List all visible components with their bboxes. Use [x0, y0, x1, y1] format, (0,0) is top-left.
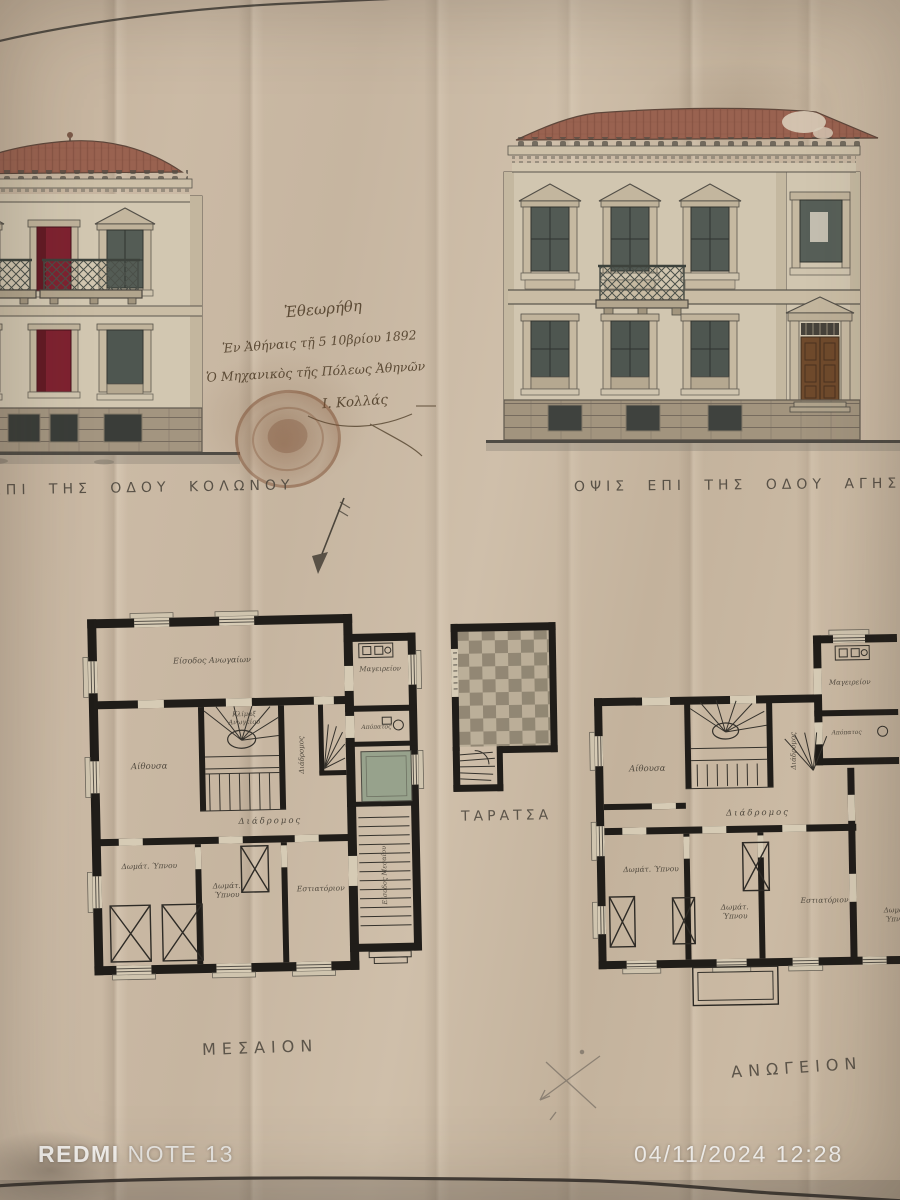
left-elevation-drawing: [0, 130, 240, 470]
right-elevation-drawing: [486, 104, 900, 452]
room-label: Δωμάτ. Ύπνου: [121, 861, 177, 872]
terrace-title: ΤΑΡΑΤΣΑ: [461, 807, 552, 825]
room-label: Είσοδος Ανωγαίων: [173, 655, 251, 667]
room-label: Διάδρομος: [297, 736, 307, 774]
room-label: Διάδρομος: [789, 732, 798, 770]
upper-floor-title: ΑΝΩΓΕΙΟΝ: [730, 1053, 862, 1081]
room-label: Διάδρομος: [238, 816, 302, 828]
right-elevation-caption: ΟΨΙΣ ΕΠΙ ΤΗΣ ΟΔΟΥ ΑΓΗΣΙΛΑΟΥ: [574, 475, 900, 495]
middle-floor-plan: Είσοδος Ανωγαίων Μαγειρείον ΚλίμαξΑνωγεί…: [74, 604, 432, 1003]
arrow-sketch: [300, 492, 360, 582]
device-watermark: REDMI NOTE 13: [38, 1141, 234, 1168]
paper-crease: [424, 0, 450, 1200]
room-label: Μαγειρείον: [359, 664, 401, 674]
room-label: Απόπατος: [831, 729, 861, 737]
approval-note-line1: Ἐθεωρήθη: [283, 297, 362, 322]
room-label: Μαγειρείον: [829, 678, 871, 687]
upper-floor-plan-drawing: [549, 609, 900, 1015]
room-label: Δωμάτ.Ύπνου: [213, 881, 241, 900]
room-label: Εστιατόριον: [297, 883, 345, 893]
device-model: NOTE 13: [128, 1141, 234, 1167]
photo-of-architectural-drawing: Ἐθεωρήθη Ἐν Ἀθήναις τῇ 5 10βρίου 1892 Ὁ …: [0, 0, 900, 1200]
paper-edge-shadow: [0, 1180, 900, 1200]
room-label: Εστιατόριον: [801, 895, 849, 905]
room-label: Απόπατος: [361, 723, 391, 731]
middle-floor-title: ΜΕΣΑΙΟΝ: [202, 1036, 319, 1059]
room-label: Δωμάτ.Ύπνου: [721, 902, 749, 921]
upper-floor-plan: Μαγειρείον Απόπατος Αίθουσα Διάδρομος Δι…: [549, 609, 900, 1015]
room-label: Είσοδος Μεσαίου: [380, 846, 389, 905]
room-label: Διάδρομος: [726, 808, 790, 820]
room-label: Δωμάτ.Ύπνου: [884, 906, 900, 924]
room-label: ΚλίμαξΑνωγείου: [228, 710, 260, 727]
room-label: Αίθουσα: [629, 764, 666, 775]
datetime-watermark: 04/11/2024 12:28: [634, 1141, 843, 1168]
approval-note-line2: Ἐν Ἀθήναις τῇ 5 10βρίου 1892: [222, 327, 417, 356]
left-elevation-caption: ΕΠΙ ΤΗΣ ΟΔΟΥ ΚΟΛΩΝΟΥ: [0, 477, 295, 498]
room-label: Αίθουσα: [131, 761, 168, 772]
north-arrow-sketch: [530, 1038, 620, 1128]
device-brand: REDMI: [38, 1141, 120, 1167]
room-label: Δωμάτ. Ύπνου: [623, 864, 679, 874]
paper-crease: [238, 0, 264, 1200]
